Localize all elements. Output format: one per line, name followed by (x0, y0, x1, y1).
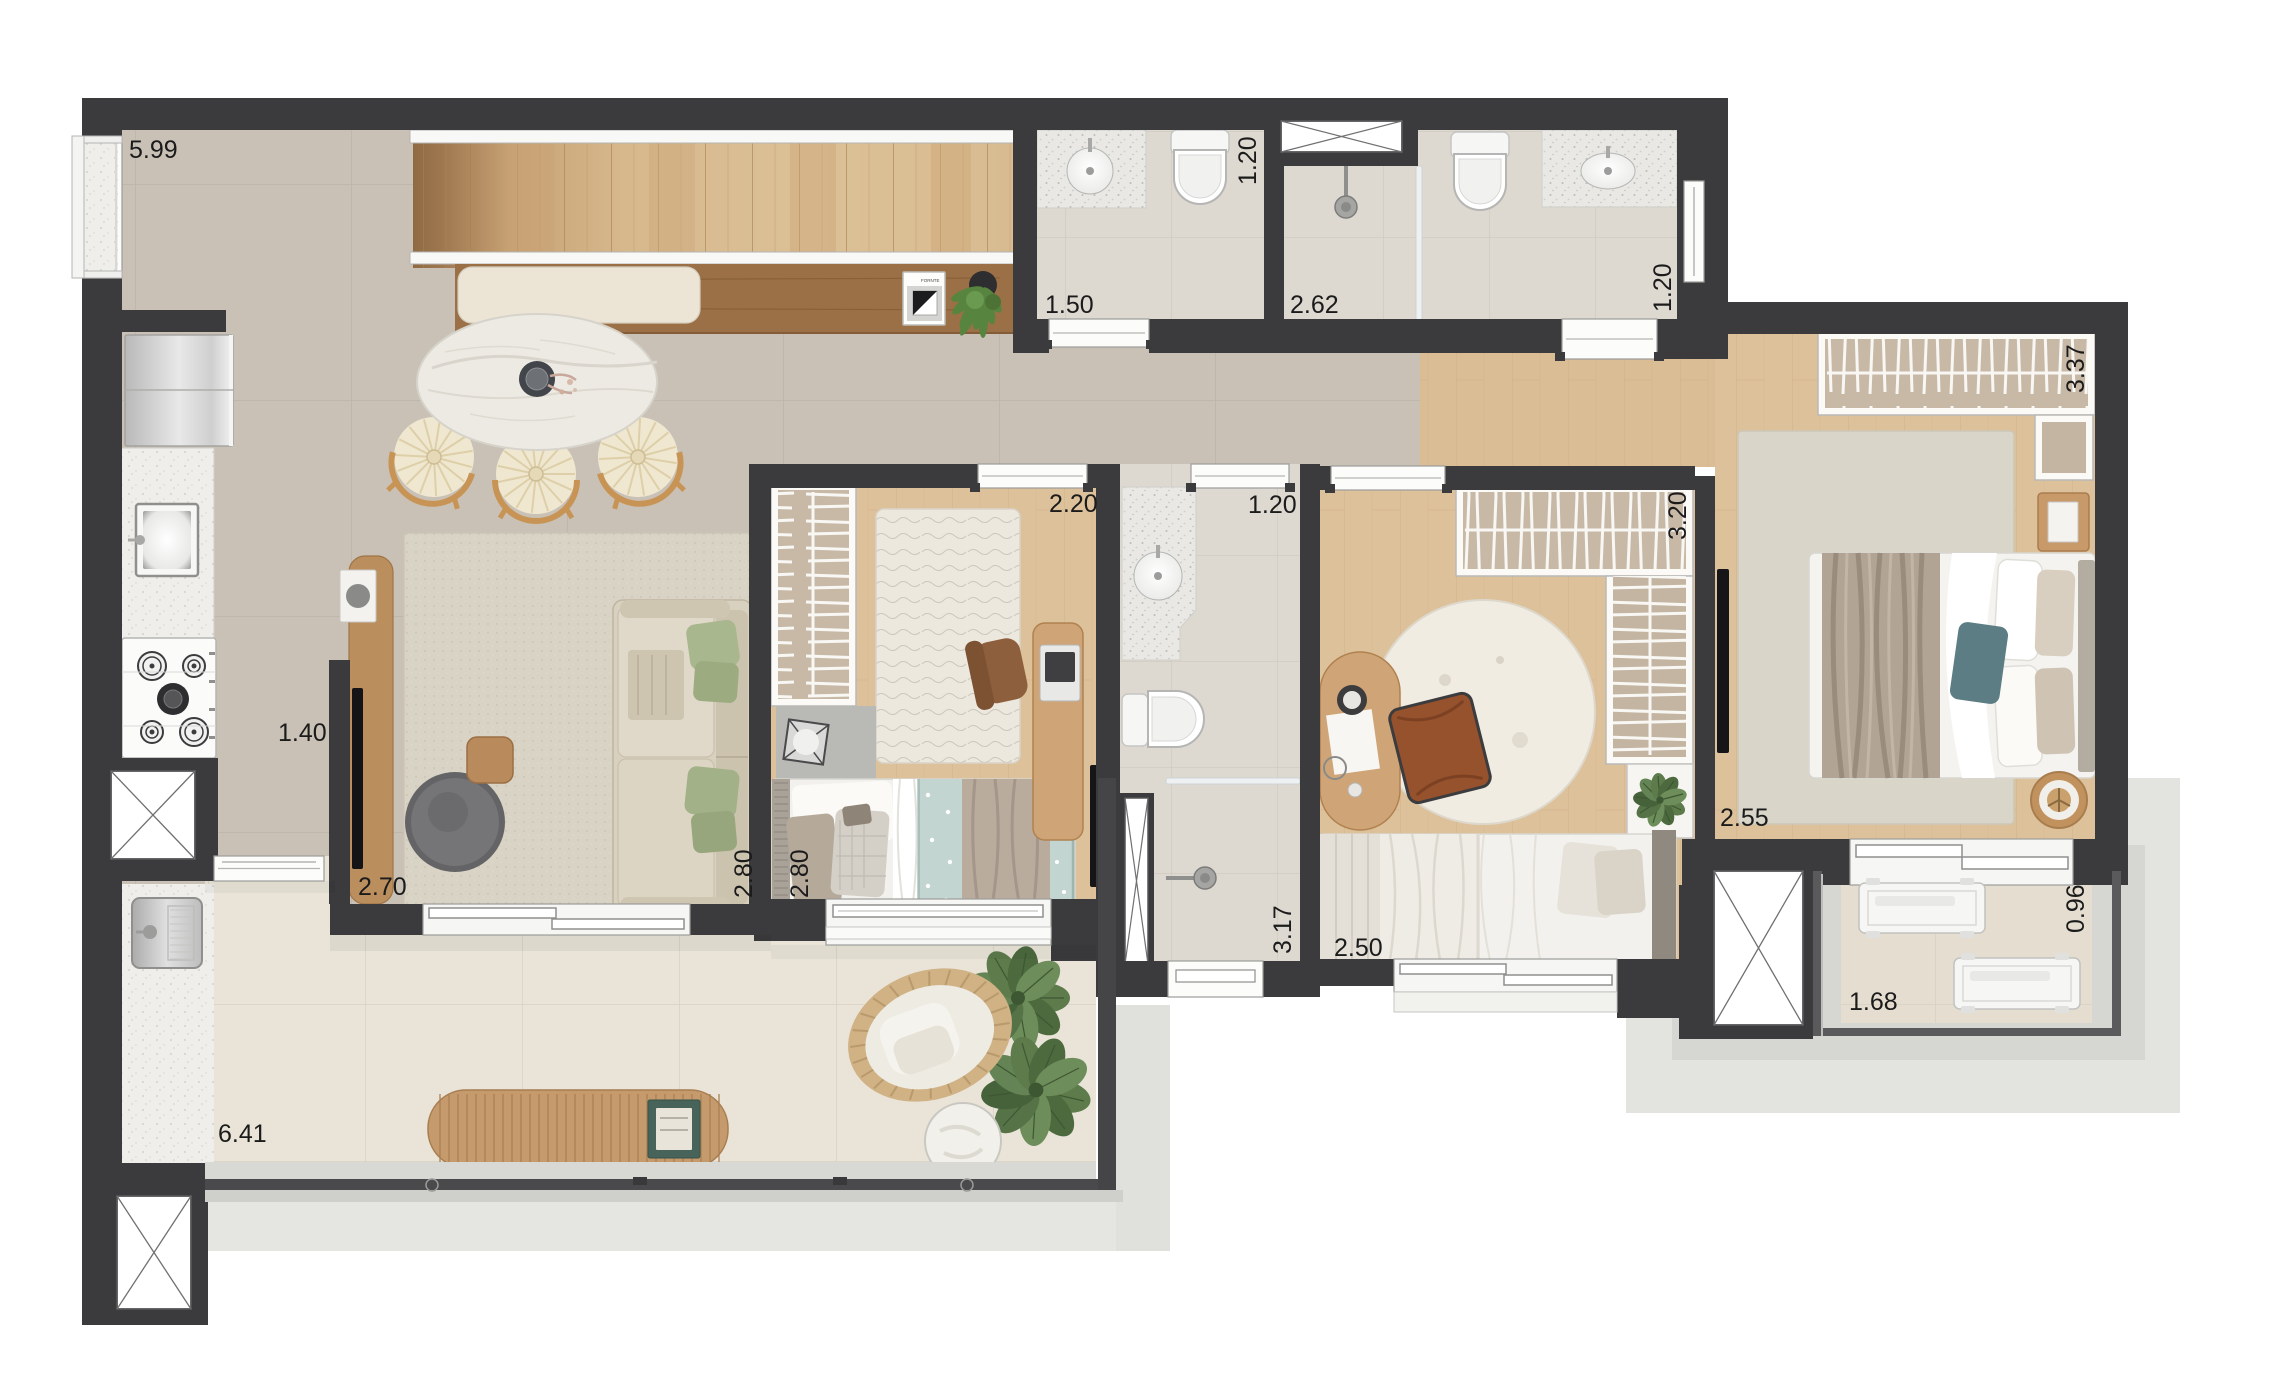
svg-text:2.20: 2.20 (1049, 490, 1098, 518)
svg-text:2.70: 2.70 (358, 873, 407, 901)
svg-text:2.80: 2.80 (730, 849, 758, 898)
svg-text:1.50: 1.50 (1045, 291, 1094, 319)
svg-text:1.20: 1.20 (1649, 263, 1677, 312)
svg-text:0.96: 0.96 (2062, 884, 2090, 933)
svg-text:2.80: 2.80 (786, 849, 814, 898)
svg-text:FORNTE: FORNTE (921, 278, 940, 283)
svg-text:2.55: 2.55 (1720, 804, 1769, 832)
svg-text:6.41: 6.41 (218, 1120, 267, 1148)
svg-text:1.20: 1.20 (1234, 136, 1262, 185)
svg-text:1.20: 1.20 (1248, 491, 1297, 519)
svg-text:1.68: 1.68 (1849, 988, 1898, 1016)
svg-text:3.17: 3.17 (1269, 905, 1297, 954)
svg-text:5.99: 5.99 (129, 136, 178, 164)
svg-text:1.40: 1.40 (278, 719, 327, 747)
svg-text:2.62: 2.62 (1290, 291, 1339, 319)
svg-text:2.50: 2.50 (1334, 934, 1383, 962)
svg-text:3.37: 3.37 (2062, 344, 2090, 393)
svg-text:3.20: 3.20 (1664, 491, 1692, 540)
